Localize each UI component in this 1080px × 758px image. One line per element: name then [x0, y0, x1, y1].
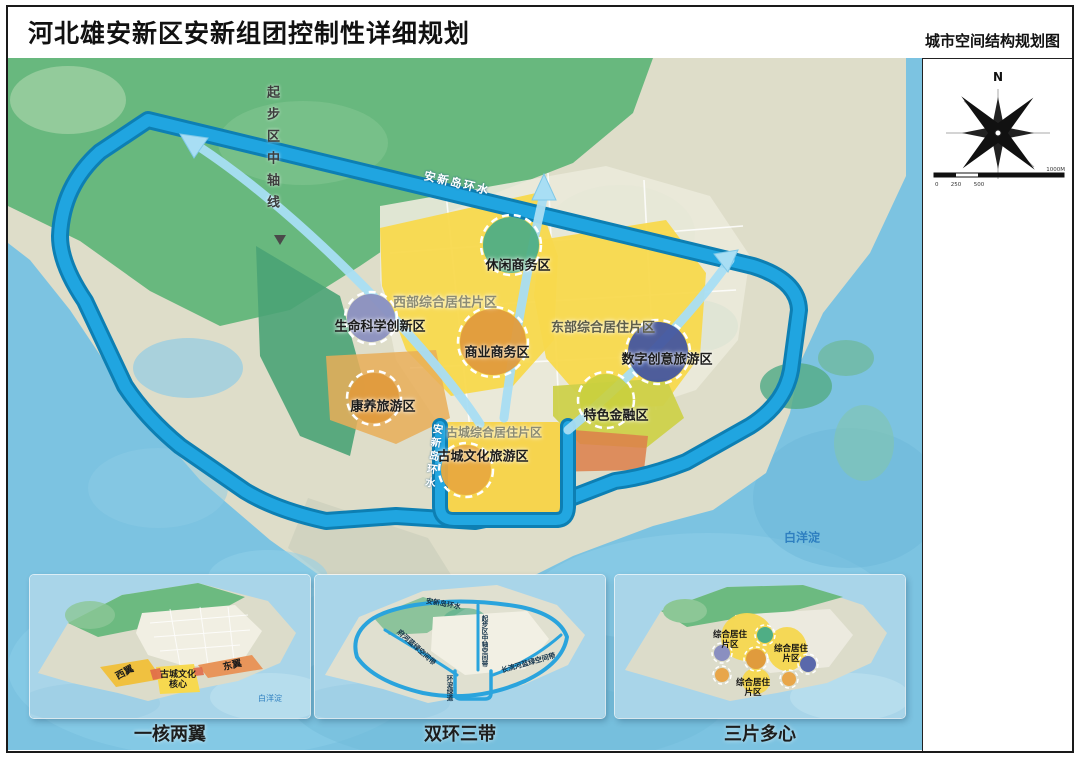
compass-north-label: N [993, 70, 1003, 84]
district-label-digital-creative: 数字创意旅游区 [621, 349, 712, 368]
axis-label: 起步区中轴线 [262, 85, 281, 217]
inset3-label2-line1: 综合居住 [774, 643, 809, 654]
inset3-caption: 三片多心 [724, 720, 796, 746]
inset2-axis-belt-label: 起步区中轴空间带 [480, 614, 489, 669]
inset2-svg: 安新岛环水 起步区中轴空间带 府河蓝绿空间带 长流河蓝绿空间带 环淀绿道 [315, 575, 605, 718]
district-label-leisure-business: 休闲商务区 [485, 255, 550, 274]
district-label-featured-finance: 特色金融区 [583, 405, 648, 424]
scale-tick-500: 500 [974, 182, 985, 188]
lake-label: 白洋淀 [784, 529, 820, 546]
map-type-label: 城市空间结构规划图 [925, 30, 1060, 51]
inset3-svg: 综合居住 片区 综合居住 片区 综合居住 片区 [615, 575, 905, 718]
district-label-wellness-tourism: 康养旅游区 [350, 396, 415, 415]
inset1-caption: 一核两翼 [134, 720, 206, 746]
inset2-greenway-label: 环淀绿道 [445, 675, 453, 703]
district-label-old-town-residential: 古城综合居住片区 [446, 424, 542, 441]
district-label-commercial-business: 商业商务区 [464, 342, 529, 361]
inset3-label1-line1: 综合居住 [713, 629, 748, 640]
inset3-label2-line2: 片区 [782, 653, 800, 664]
legend-panel: N 0 250 500 1000M [922, 58, 1073, 751]
inset1-svg: 西翼 古城文化 核心 东翼 白洋淀 [30, 575, 310, 718]
inset-three-areas-multi-centers: 综合居住 片区 综合居住 片区 综合居住 片区 [615, 575, 905, 718]
inset-double-ring-three-belts: 安新岛环水 起步区中轴空间带 府河蓝绿空间带 长流河蓝绿空间带 环淀绿道 [315, 575, 605, 718]
inset-one-core-two-wings: 西翼 古城文化 核心 东翼 白洋淀 [30, 575, 310, 718]
inset3-label1-line2: 片区 [721, 639, 739, 650]
inset1-lake-label: 白洋淀 [258, 693, 282, 703]
district-label-life-science: 生命科学创新区 [334, 316, 425, 335]
scale-tick-250: 250 [951, 182, 962, 188]
inset3-label3-line2: 片区 [744, 687, 762, 698]
inset3-label3-line1: 综合居住 [736, 677, 771, 688]
district-label-old-town-culture: 古城文化旅游区 [437, 446, 528, 465]
district-label-east-residential: 东部综合居住片区 [551, 317, 655, 336]
planning-sheet: 河北雄安新区安新组团控制性详细规划 城市空间结构规划图 [0, 0, 1080, 758]
inset1-core-label-line1: 古城文化 [160, 668, 196, 680]
page-title: 河北雄安新区安新组团控制性详细规划 [28, 14, 470, 50]
inset2-caption: 双环三带 [424, 720, 496, 746]
scale-tick-0: 0 [935, 182, 939, 188]
scale-tick-1000: 1000M [1046, 167, 1065, 173]
inset1-core-label-line2: 核心 [169, 678, 187, 690]
scale-bar: 0 250 500 1000M [933, 163, 1067, 191]
district-label-west-residential: 西部综合居住片区 [393, 292, 497, 311]
